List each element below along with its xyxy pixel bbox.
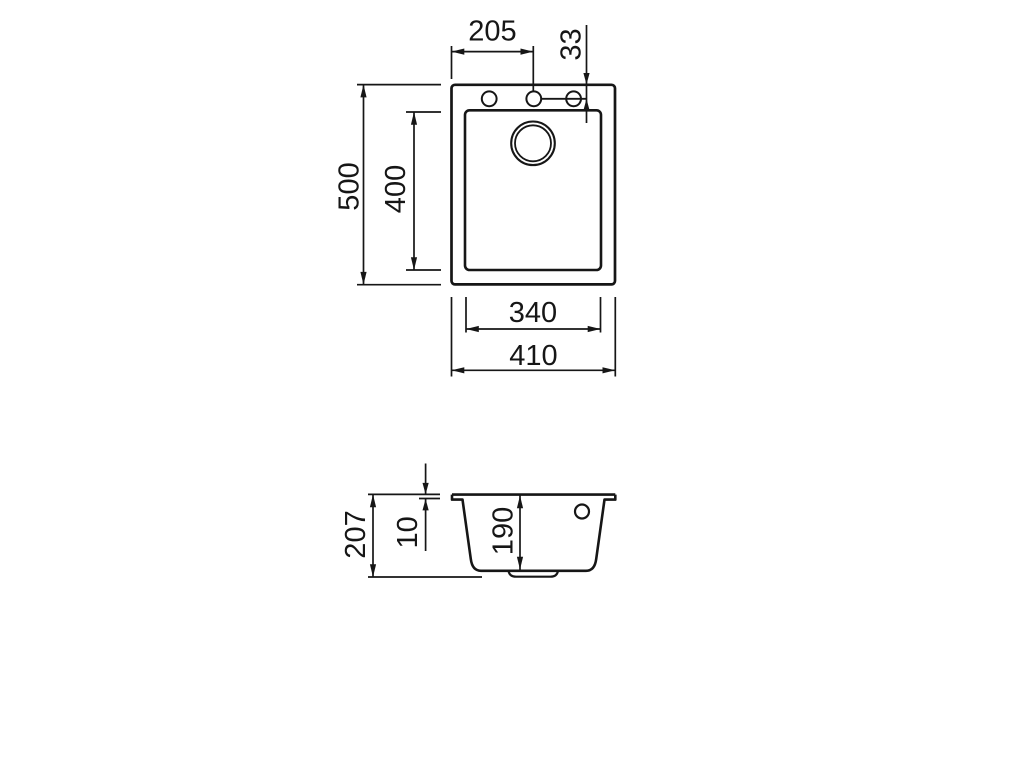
svg-text:400: 400 bbox=[380, 165, 412, 213]
svg-text:207: 207 bbox=[340, 510, 372, 558]
svg-text:500: 500 bbox=[334, 162, 366, 210]
svg-text:33: 33 bbox=[556, 28, 588, 60]
svg-text:410: 410 bbox=[509, 340, 557, 372]
svg-text:205: 205 bbox=[468, 16, 516, 48]
svg-text:190: 190 bbox=[488, 507, 520, 555]
svg-text:10: 10 bbox=[392, 516, 424, 548]
svg-text:340: 340 bbox=[509, 297, 557, 329]
